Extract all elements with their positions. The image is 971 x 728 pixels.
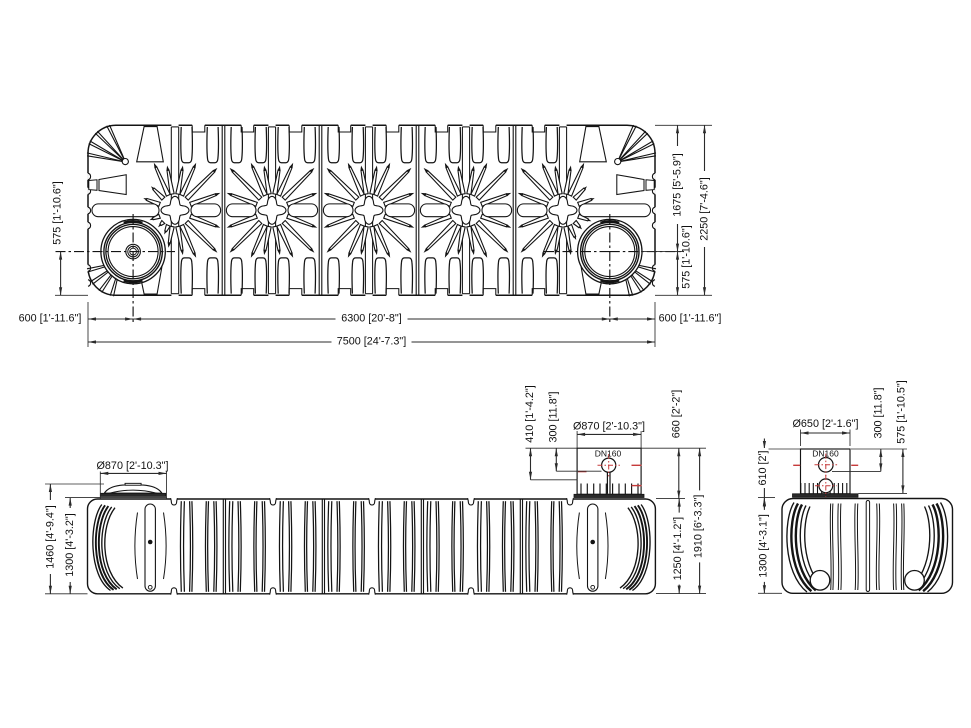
svg-text:1300 [4'-3.2"]: 1300 [4'-3.2"]: [64, 513, 76, 577]
svg-text:Ø650 [2'-1.6"]: Ø650 [2'-1.6"]: [793, 418, 859, 430]
svg-text:575 [1'-10.6"]: 575 [1'-10.6"]: [51, 181, 63, 245]
svg-text:600 [1'-11.6"]: 600 [1'-11.6"]: [19, 312, 82, 324]
svg-text:1300 [4'-3.1"]: 1300 [4'-3.1"]: [757, 514, 769, 578]
svg-text:660 [2'-2"]: 660 [2'-2"]: [670, 390, 682, 439]
svg-text:DN160: DN160: [595, 448, 622, 458]
svg-text:575 [1'-10.5"]: 575 [1'-10.5"]: [895, 380, 907, 444]
svg-text:Ø870 [2'-10.3"]: Ø870 [2'-10.3"]: [573, 420, 645, 432]
svg-text:300 [11.8"]: 300 [11.8"]: [873, 387, 885, 438]
svg-text:1910 [6'-3.3"]: 1910 [6'-3.3"]: [692, 495, 704, 559]
svg-text:575 [1'-10.6"]: 575 [1'-10.6"]: [680, 225, 692, 289]
svg-text:600 [1'-11.6"]: 600 [1'-11.6"]: [659, 312, 722, 324]
svg-text:410 [1'-4.2"]: 410 [1'-4.2"]: [524, 385, 536, 443]
svg-text:610 [2']: 610 [2']: [757, 450, 769, 485]
svg-text:1460 [4'-9.4"]: 1460 [4'-9.4"]: [44, 505, 56, 569]
svg-text:6300 [20'-8"]: 6300 [20'-8"]: [341, 312, 402, 324]
svg-text:2250 [7'-4.6"]: 2250 [7'-4.6"]: [698, 177, 710, 241]
svg-text:1250 [4'-1.2"]: 1250 [4'-1.2"]: [672, 517, 684, 581]
svg-text:DN160: DN160: [812, 448, 839, 458]
svg-text:300 [11.8"]: 300 [11.8"]: [547, 391, 559, 442]
svg-text:1675 [5'-5.9"]: 1675 [5'-5.9"]: [671, 153, 683, 217]
svg-text:7500 [24'-7.3"]: 7500 [24'-7.3"]: [337, 335, 407, 347]
svg-text:Ø870 [2'-10.3"]: Ø870 [2'-10.3"]: [97, 460, 169, 472]
